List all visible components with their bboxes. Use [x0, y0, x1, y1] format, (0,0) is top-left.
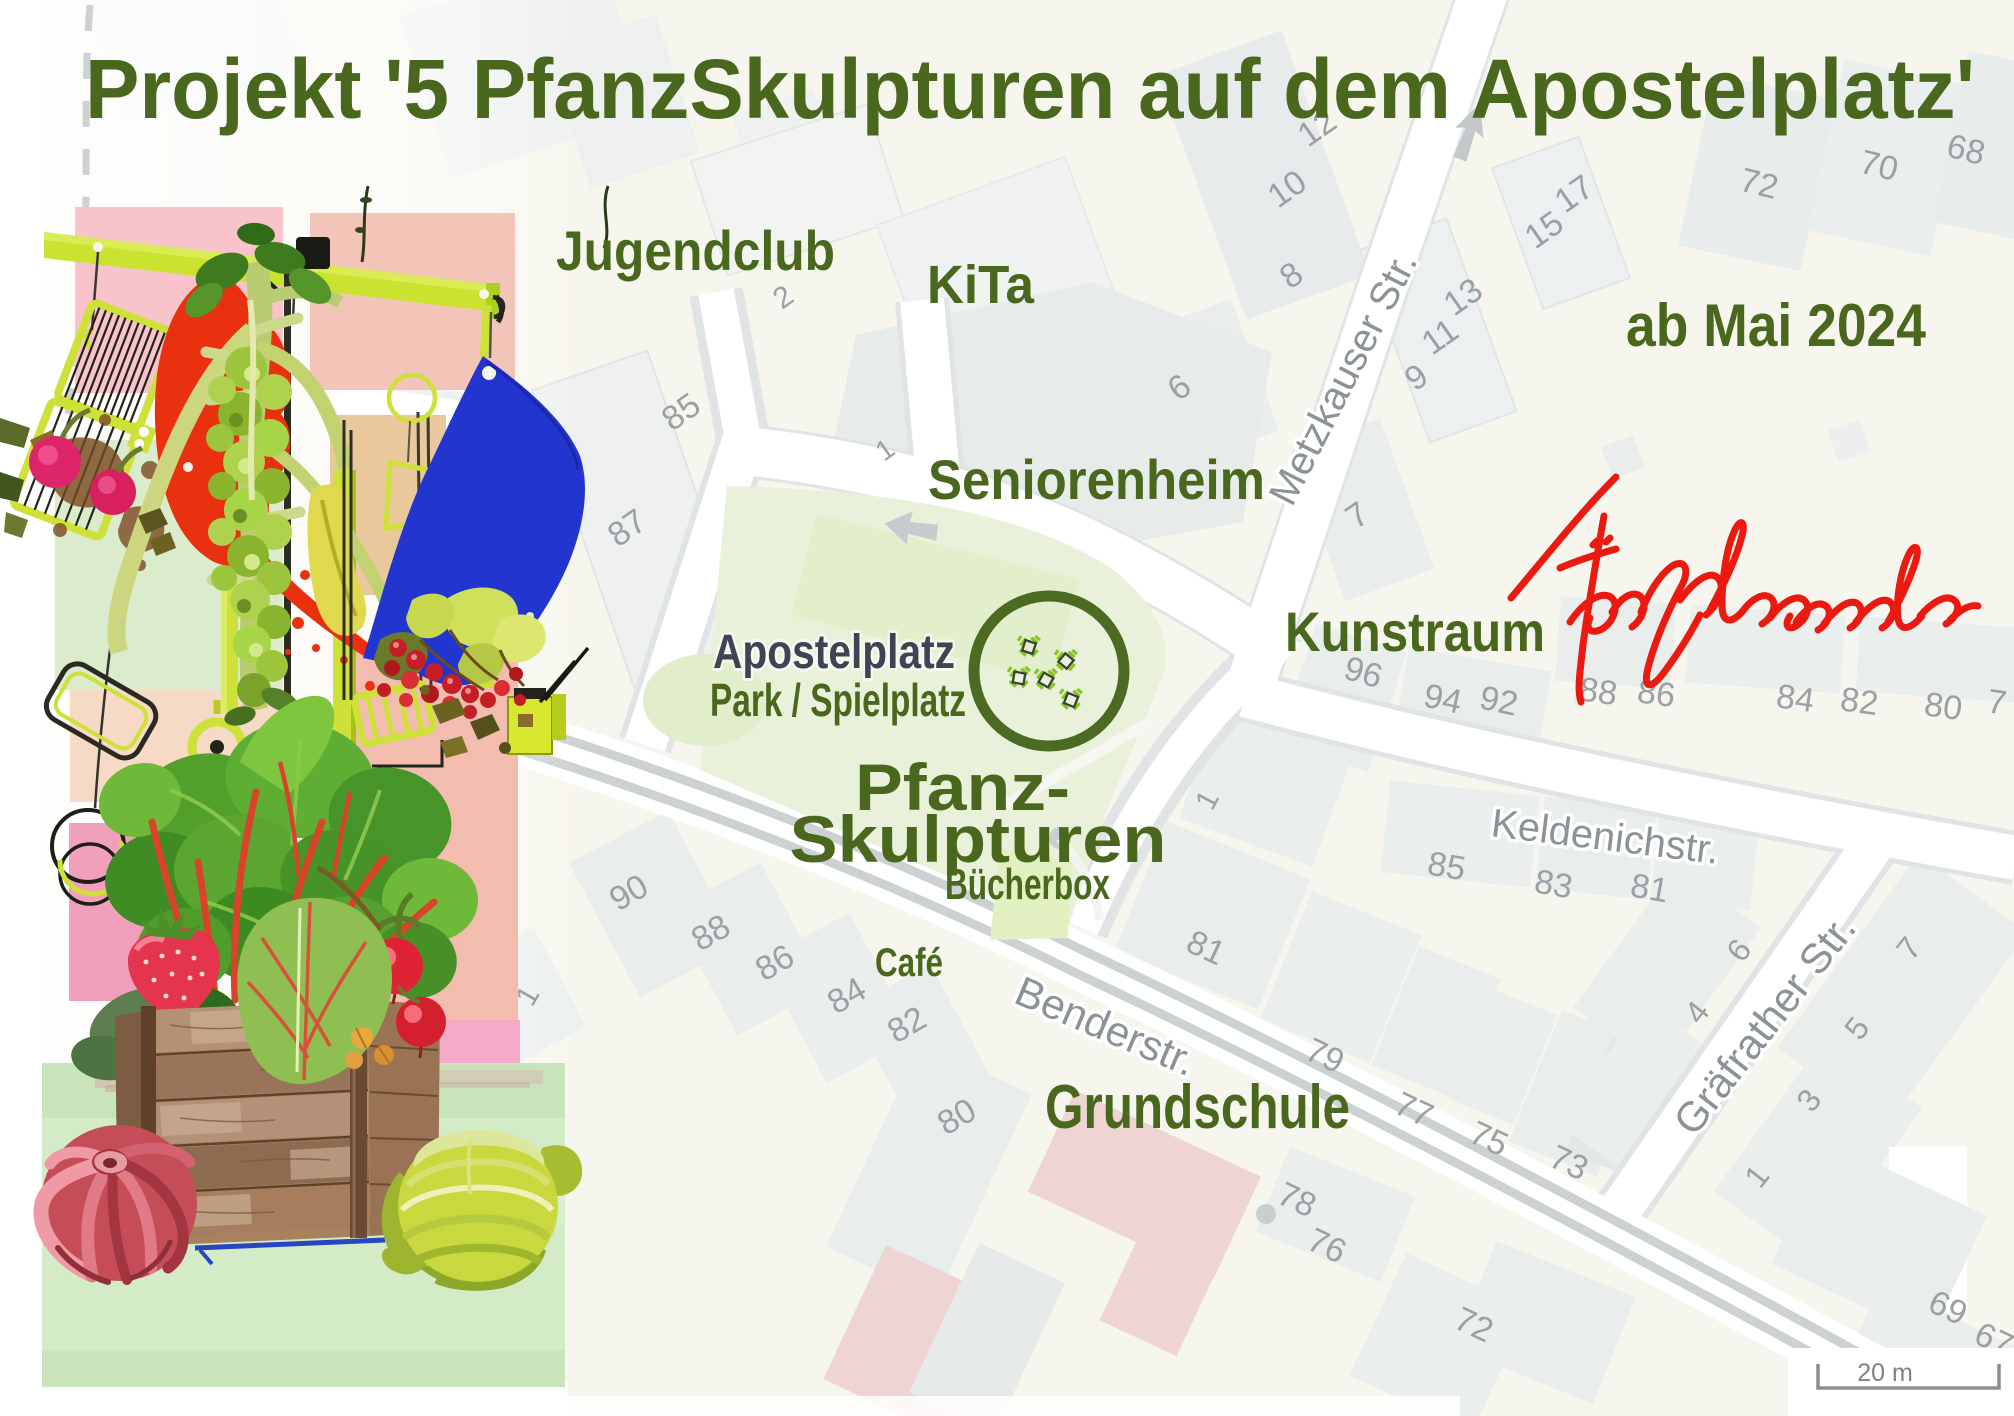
svg-text:Bücherbox: Bücherbox — [945, 860, 1110, 909]
svg-text:85: 85 — [1425, 844, 1469, 888]
svg-text:82: 82 — [1838, 680, 1881, 723]
svg-text:92: 92 — [1476, 679, 1521, 724]
svg-text:Grundschule: Grundschule — [1045, 1073, 1350, 1142]
svg-text:Seniorenheim: Seniorenheim — [928, 448, 1265, 511]
svg-text:Park / Spielplatz: Park / Spielplatz — [710, 674, 966, 726]
svg-text:Jugendclub: Jugendclub — [556, 219, 835, 282]
svg-text:Projekt '5 PfanzSkulpturen auf: Projekt '5 PfanzSkulpturen auf dem Apost… — [85, 42, 1975, 136]
svg-text:80: 80 — [1922, 685, 1965, 728]
svg-text:Apostelplatz: Apostelplatz — [713, 626, 955, 679]
svg-text:KiTa: KiTa — [927, 255, 1035, 315]
svg-text:83: 83 — [1532, 862, 1576, 906]
svg-text:94: 94 — [1420, 677, 1465, 722]
svg-text:Kunstraum: Kunstraum — [1285, 600, 1545, 663]
svg-text:84: 84 — [1774, 677, 1817, 720]
svg-text:81: 81 — [1628, 866, 1672, 910]
svg-text:Café: Café — [875, 941, 943, 985]
svg-text:20 m: 20 m — [1857, 1359, 1913, 1387]
svg-text:88: 88 — [1577, 670, 1620, 713]
svg-text:ab Mai 2024: ab Mai 2024 — [1626, 292, 1927, 359]
